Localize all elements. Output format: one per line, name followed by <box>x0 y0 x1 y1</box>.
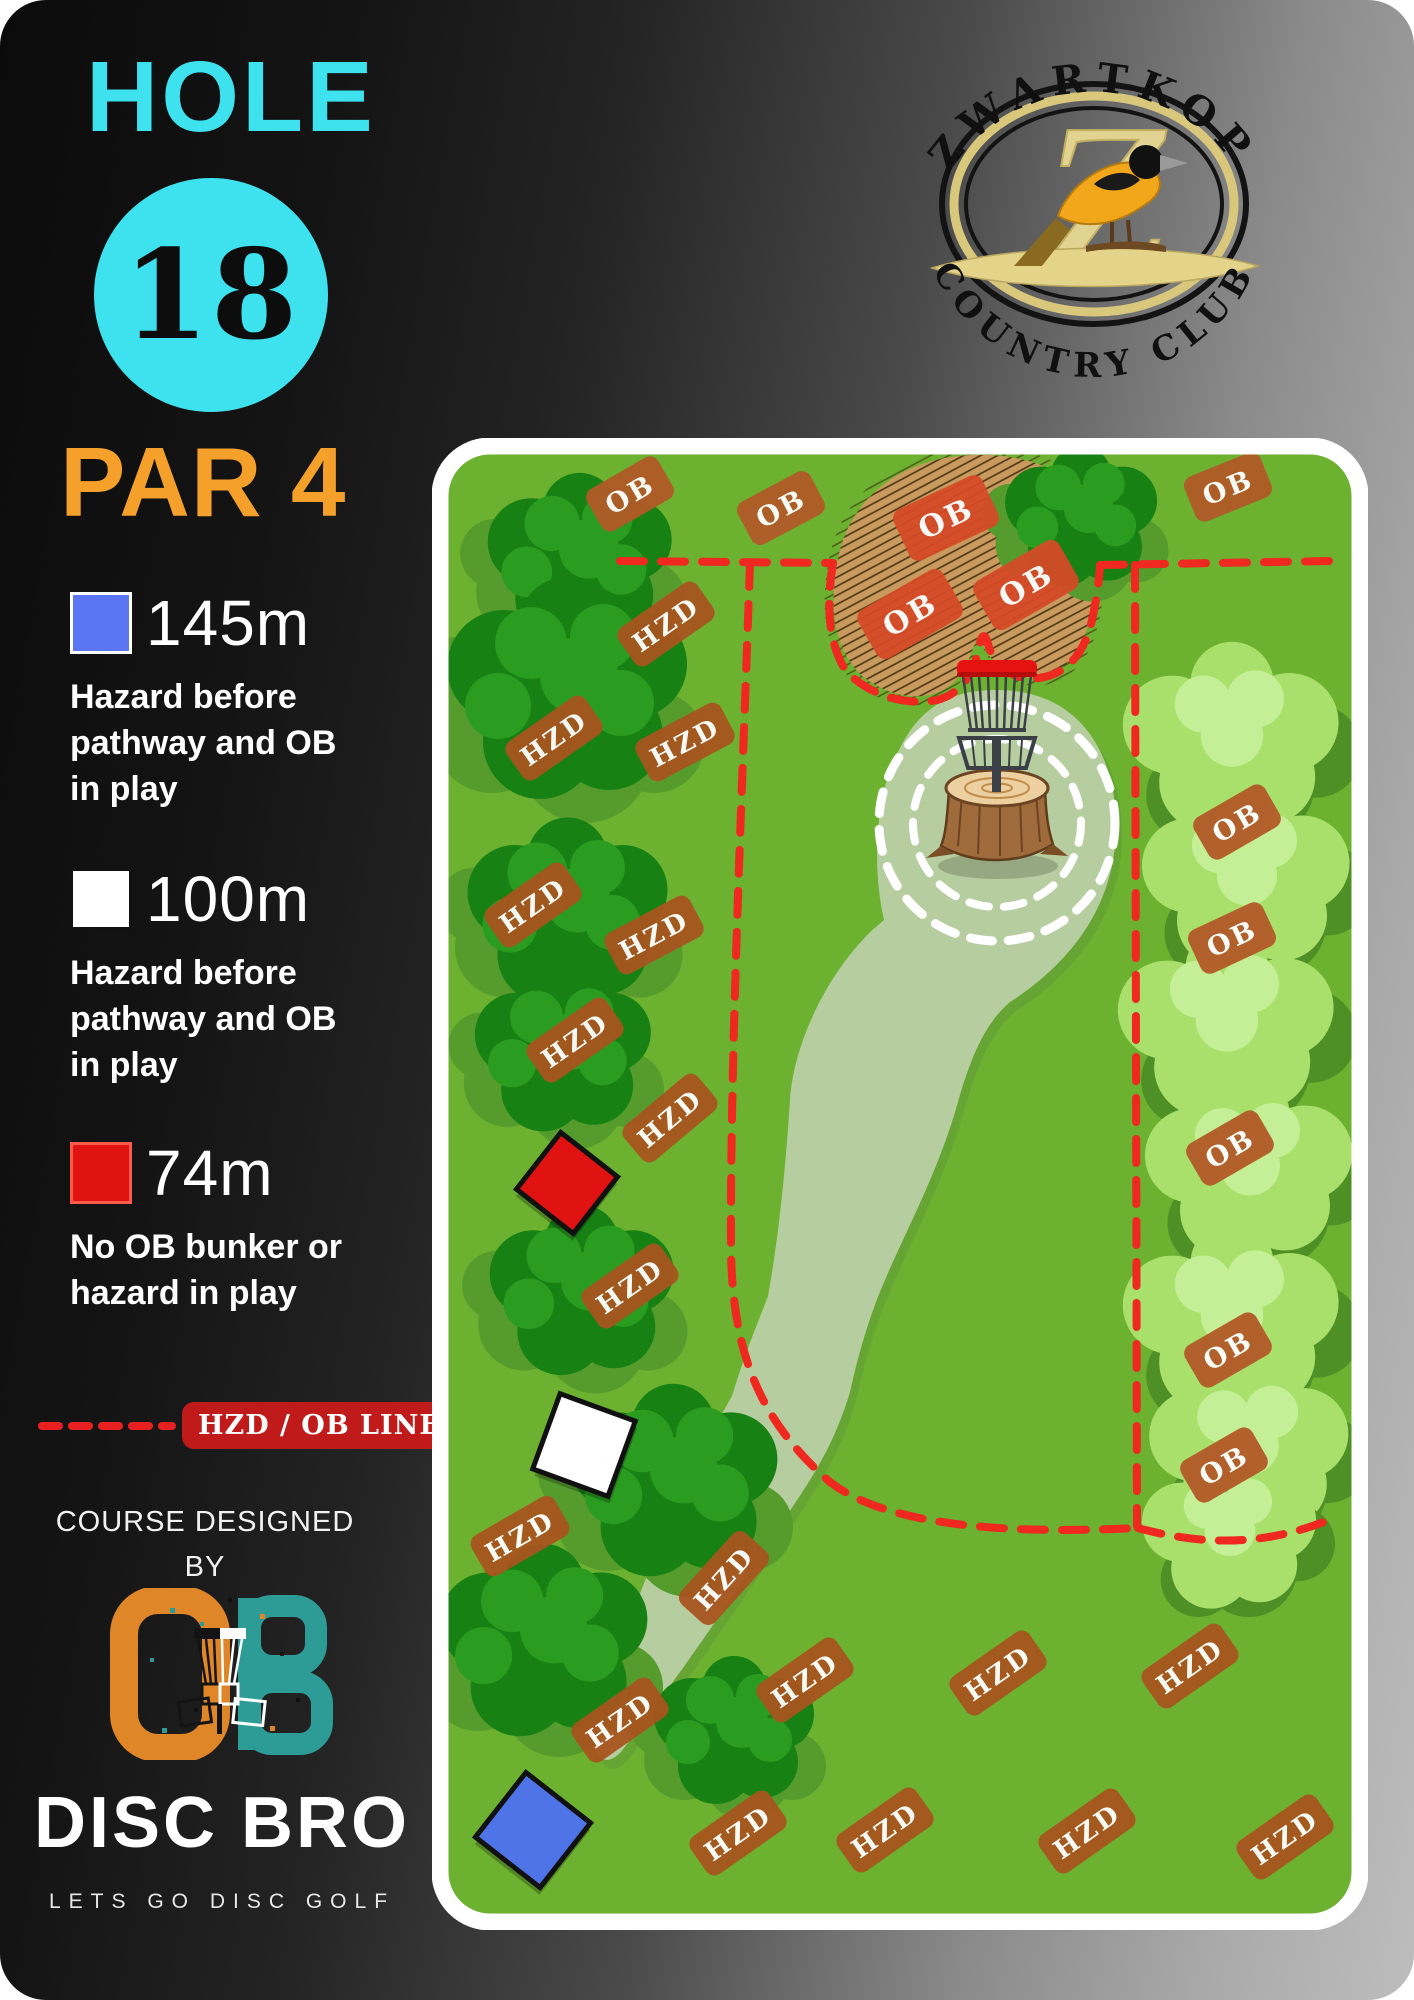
course-map: HZDHZDHZDHZDHZDHZDHZDHZDHZDHZDHZDHZDHZDH… <box>432 438 1368 1930</box>
brand-name: DISC BRO <box>34 1782 410 1864</box>
blue-tee-swatch <box>70 592 132 654</box>
hzd-ob-line-label: HZD / OB LINE <box>182 1402 457 1449</box>
disc-bro-logo <box>110 1588 334 1760</box>
brand-tagline: LETS GO DISC GOLF <box>49 1890 395 1914</box>
legend-item-red-tee: 74m No OB bunker or hazard in play <box>70 1136 400 1316</box>
legend-item-blue-tee: 145m Hazard before pathway and OB in pla… <box>70 586 400 813</box>
blue-tee-distance: 145m <box>146 586 310 660</box>
red-dashed-line-sample <box>36 1416 176 1436</box>
red-tee-swatch <box>70 1142 132 1204</box>
blue-tee-description: Hazard before pathway and OB in play <box>70 674 400 813</box>
hole-label: HOLE <box>86 40 376 155</box>
logo-letter-b <box>238 1598 322 1750</box>
hole-number-circle: 18 <box>94 178 328 412</box>
course-designed-by: COURSE DESIGNED BY <box>40 1500 370 1590</box>
white-tee-swatch <box>70 868 132 930</box>
par-label: PAR 4 <box>60 426 346 539</box>
hzd-ob-line-key: HZD / OB LINE <box>36 1402 457 1449</box>
legend-item-white-tee: 100m Hazard before pathway and OB in pla… <box>70 862 400 1089</box>
red-tee-distance: 74m <box>146 1136 274 1210</box>
white-tee-description: Hazard before pathway and OB in play <box>70 950 400 1089</box>
hole-number: 18 <box>123 223 300 368</box>
zwartkop-country-club-logo: Z ZWARTKOP COUNTRY CLUB <box>878 14 1310 402</box>
poster-card: HOLE 18 PAR 4 145m Hazard before pathway… <box>0 0 1414 2000</box>
red-tee-description: No OB bunker or hazard in play <box>70 1224 400 1316</box>
white-tee-distance: 100m <box>146 862 310 936</box>
